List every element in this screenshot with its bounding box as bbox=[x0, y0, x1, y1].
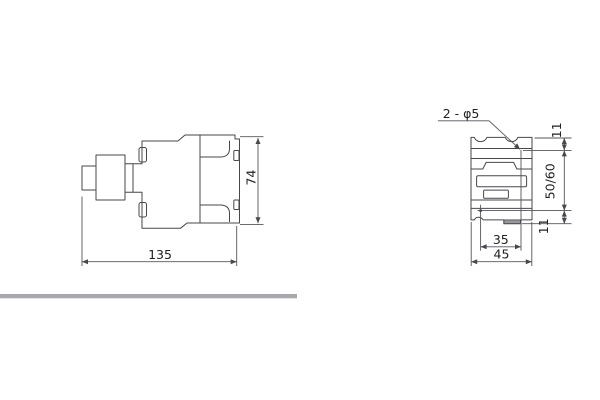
top-margin-label: 11 bbox=[549, 122, 564, 138]
din-rail-tab bbox=[504, 220, 520, 224]
contactor-dimension-drawing: 135 74 2 - φ5 11 5 bbox=[0, 0, 600, 400]
bottom-hole-marker bbox=[479, 209, 482, 212]
rail-notch-bottom bbox=[234, 200, 239, 210]
mounting-pitch-label: 50/60 bbox=[543, 163, 558, 199]
terminal-block bbox=[96, 155, 125, 200]
hole-spacing-label: 35 bbox=[493, 232, 509, 247]
front-width-label: 45 bbox=[494, 247, 510, 262]
side-height-label: 74 bbox=[244, 170, 259, 186]
divider-bar bbox=[0, 294, 297, 298]
front-hat-contour bbox=[471, 162, 532, 169]
side-view-dimensions: 135 74 bbox=[82, 137, 264, 266]
side-view bbox=[82, 135, 240, 228]
technical-drawing-page: 135 74 2 - φ5 11 5 bbox=[0, 0, 600, 400]
side-body-outline bbox=[133, 135, 240, 228]
small-recess bbox=[484, 190, 509, 198]
holes-callout: 2 - φ5 bbox=[438, 106, 520, 149]
din-clip-bottom bbox=[139, 203, 147, 218]
side-extension-lines bbox=[82, 137, 264, 266]
bottom-margin-label: 11 bbox=[536, 218, 551, 234]
holes-leader-line bbox=[438, 121, 520, 150]
rail-notch-top bbox=[234, 151, 239, 161]
coil-knob bbox=[82, 166, 96, 190]
side-width-label: 135 bbox=[148, 247, 172, 262]
inner-contour-top bbox=[200, 141, 230, 157]
label-recess bbox=[477, 176, 527, 187]
front-horizontal-lines bbox=[471, 149, 532, 209]
neck-lines bbox=[125, 164, 133, 193]
holes-label: 2 - φ5 bbox=[443, 106, 480, 121]
din-clip-top bbox=[139, 148, 147, 163]
inner-contour-bottom bbox=[200, 205, 230, 222]
